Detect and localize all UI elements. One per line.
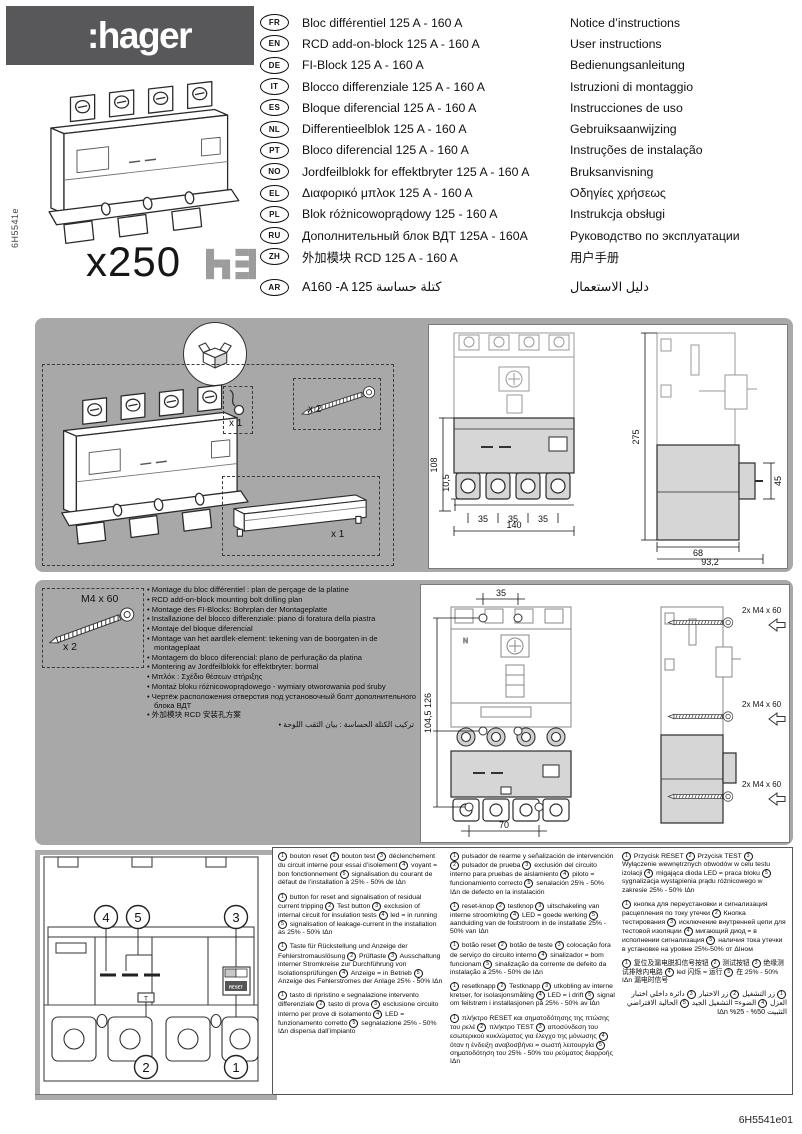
language-badge: EN	[260, 35, 289, 52]
legend-nl: 1 reset-knop 2 testknop 3 uitschakeling …	[450, 902, 615, 937]
drilling-drawing: N	[421, 585, 787, 840]
manual-title: Руководство по эксплуатации	[570, 229, 797, 243]
language-badge: EL	[260, 185, 289, 202]
hager-logo-text: :hager	[69, 15, 191, 57]
legend-number: 1	[777, 990, 786, 999]
dim-top-pitch: 35	[496, 588, 506, 598]
note-item: تركيب الكتلة الحساسة : بيان الثقب اللوحة	[147, 721, 414, 730]
manual-title: Bedienungsanleitung	[570, 58, 797, 72]
legend-number: 2	[477, 1023, 486, 1032]
reset-unit: RESET	[223, 967, 250, 995]
arrow-left-icon	[769, 713, 785, 725]
language-row-no: NOJordfeilblokk for effektbryter 125 A -…	[260, 161, 797, 182]
seal-icon	[224, 387, 249, 417]
legend-number: 1	[278, 991, 287, 1000]
legend-number: 2	[316, 1000, 325, 1009]
cover-kit-box: x 1	[222, 476, 380, 556]
dim-hole-spacing: 104,5 126	[423, 693, 433, 733]
section-divider	[35, 1094, 273, 1095]
language-badge: ZH	[260, 248, 289, 265]
legend-number: 5	[483, 960, 492, 969]
legend-number: 3	[372, 902, 381, 911]
bolt-kit-box: M4 x 60 x 2	[42, 588, 144, 668]
dim-width: 140	[506, 520, 521, 530]
dimension-panel: 108 10,5 35 35 35 140	[428, 324, 788, 569]
instruction-leaflet: :hager 6H5541e x250 FRBloc différentiel …	[0, 0, 802, 1134]
manual-title: Gebruiksaanwijzing	[570, 122, 797, 136]
cover-qty: x 1	[331, 529, 344, 540]
product-title: Bloc différentiel 125 A - 160 A	[302, 16, 570, 30]
manual-title: Οδηγίες χρήσεως	[570, 186, 797, 200]
product-title: Bloque diferencial 125 A - 160 A	[302, 101, 570, 115]
language-row-en: ENRCD add-on-block 125 A - 160 AUser ins…	[260, 33, 797, 54]
legend-number: 5	[278, 920, 287, 929]
language-row-pt: PTBloco diferencial 125 A - 160 AInstruç…	[260, 140, 797, 161]
legend-number: 4	[644, 869, 653, 878]
legend-es: 1 pulsador de rearme y señalización de i…	[450, 852, 615, 897]
legend-number: 4	[538, 951, 547, 960]
screw-note-1: 2x M4 x 60	[742, 606, 782, 615]
dim-bottom-pitch: 70	[499, 820, 509, 830]
language-row-fr: FRBloc différentiel 125 A - 160 ANotice …	[260, 12, 797, 33]
legend-number: 2	[330, 852, 339, 861]
callout-3: 3	[232, 910, 239, 925]
language-badge: IT	[260, 78, 289, 95]
legend-number: 2	[325, 902, 334, 911]
legend-number: 5	[585, 991, 594, 1000]
note-item: Montaż bloku różnicowoprądowego - wymiar…	[154, 683, 421, 692]
legend-zh: 1 复位及漏电脱扣信号按钮 2 测试按钮 3 绝缘测试排除内电路 4 led 闪…	[622, 959, 787, 985]
note-item: Montage van het aardlek-element: tekenin…	[154, 635, 421, 653]
manual-title: دليل الاستعمال	[570, 279, 797, 295]
legend-number: 1	[622, 959, 631, 968]
legend-number: 4	[510, 911, 519, 920]
reset-button-label: RESET	[229, 985, 243, 990]
product-title: Blok różnicowoprądowy 125 - 160 A	[302, 207, 570, 221]
product-title: Дополнительный блок ВДТ 125А - 160А	[302, 229, 570, 243]
seal-kit-box: x 1	[223, 386, 253, 434]
language-row-zh: ZH外加模块 RCD 125 A - 160 A用户手册	[260, 246, 797, 267]
note-item: 外加模块 RCD 安装孔方案	[154, 711, 421, 720]
note-item: Montagem do bloco diferencial: plano de …	[154, 654, 421, 663]
legend-number: 4	[665, 968, 674, 977]
h3-range-logo	[206, 247, 256, 281]
legend-ar: 1 زر التشغيل 2 زر الاختبار 3 دائرة داخلي…	[622, 990, 787, 1017]
legend-number: 4	[536, 991, 545, 1000]
legend-number: 4	[684, 927, 693, 936]
legend-number: 4	[399, 861, 408, 870]
language-row-nl: NLDifferentieelblok 125 A - 160 AGebruik…	[260, 118, 797, 139]
legend-number: 3	[542, 982, 551, 991]
legend-number: 3	[687, 990, 696, 999]
product-isometric-drawing	[30, 76, 256, 248]
legend-column: 1 pulsador de rearme y señalización de i…	[450, 852, 615, 1090]
language-list: FRBloc différentiel 125 A - 160 ANotice …	[260, 12, 797, 298]
legend-number: 2	[686, 852, 695, 861]
product-title: 外加模块 RCD 125 A - 160 A	[302, 248, 570, 266]
legend-de: 1 Taste für Rückstellung und Anzeige der…	[278, 942, 443, 986]
section-drilling-plan: M4 x 60 x 2 Montage du bloc différentiel…	[35, 580, 793, 845]
terminal-cover-icon	[227, 485, 373, 541]
note-item: Montage du bloc différentiel : plan de p…	[154, 586, 421, 595]
legend-number: 1	[278, 942, 287, 951]
legend-number: 2	[450, 861, 459, 870]
seal-qty: x 1	[229, 418, 242, 429]
callout-5: 5	[134, 910, 141, 925]
note-item: Чертёж расположения отверстия под устано…	[154, 693, 421, 711]
note-item: RCD add-on-block mounting bolt drilling …	[154, 596, 421, 605]
product-title: Differentieelblok 125 A - 160 A	[302, 122, 570, 136]
legend-number: 2	[497, 982, 506, 991]
dim-foot-offset: 10,5	[441, 474, 451, 492]
note-item: Montering av Jordfeilblokk for effektbry…	[154, 663, 421, 672]
legend-number: 3	[388, 952, 397, 961]
note-item: Μπλόκ : Σχέδιο θέσεων στήριξης	[154, 673, 421, 682]
document-ref-vertical: 6H5541e	[10, 168, 20, 248]
legend-pt: 1 botão reset 2 botão de teste 3 colocaç…	[450, 941, 615, 977]
product-title: RCD add-on-block 125 A - 160 A	[302, 37, 570, 51]
product-title: A160 -A 125 كتلة حساسة	[302, 279, 570, 295]
dim-knob-height: 45	[773, 476, 783, 486]
test-button-label: T	[144, 996, 148, 1003]
language-badge: NO	[260, 163, 289, 180]
legend-number: 3	[744, 852, 753, 861]
legend-number: 5	[680, 999, 689, 1008]
legend-it: 1 tasto di ripristino e segnalazione int…	[278, 991, 443, 1036]
language-badge: RU	[260, 227, 289, 244]
legend-number: 2	[711, 959, 720, 968]
legend-el: 1 πλήκτρο RESET και σηματοδότησης της πτ…	[450, 1014, 615, 1067]
legend-number: 3	[377, 852, 386, 861]
legend-number: 5	[724, 968, 733, 977]
dim-pitch-3: 35	[538, 514, 548, 524]
note-item: Montaje del bloque diferencial	[154, 625, 421, 634]
legend-number: 1	[450, 941, 459, 950]
language-badge: DE	[260, 57, 289, 74]
manual-title: User instructions	[570, 37, 797, 51]
legend-number: 3	[752, 959, 761, 968]
drilling-panel: N	[420, 584, 790, 843]
legend-number: 5	[414, 969, 423, 978]
screw-note-3: 2x M4 x 60	[742, 780, 782, 789]
language-badge: AR	[260, 279, 289, 296]
manual-title: Instrucciones de uso	[570, 101, 797, 115]
legend-column: 1 Przycisk RESET 2 Przycisk TEST 3 Wyłąc…	[622, 852, 787, 1090]
legend-number: 2	[712, 909, 721, 918]
callout-4: 4	[102, 910, 109, 925]
legend-number: 5	[589, 911, 598, 920]
language-row-ar: ARA160 -A 125 كتلة حساسةدليل الاستعمال	[260, 277, 797, 298]
bolt-icon	[43, 595, 141, 659]
screws-kit-box: x 2	[293, 378, 381, 430]
legend-number: 2	[730, 990, 739, 999]
legend-number: 3	[371, 1000, 380, 1009]
legend-number: 4	[373, 1010, 382, 1019]
legend-number: 1	[278, 852, 287, 861]
note-item: Montage des FI-Blocks: Bohrplan der Mont…	[154, 606, 421, 615]
legend-number: 1	[450, 902, 459, 911]
legend-fr: 1 bouton reset 2 bouton test 3 déclenche…	[278, 852, 443, 888]
callout-2: 2	[142, 1060, 149, 1075]
language-row-es: ESBloque diferencial 125 A - 160 AInstru…	[260, 97, 797, 118]
dim-front-height: 108	[429, 457, 439, 472]
manual-title: Bruksanvisning	[570, 165, 797, 179]
legend-column: 1 bouton reset 2 bouton test 3 déclenche…	[278, 852, 443, 1090]
dim-pitch-1: 35	[478, 514, 488, 524]
manual-title: 用户手册	[570, 248, 797, 266]
language-row-el: ELΔιαφορικό μπλοκ 125 A - 160 AΟδηγίες χ…	[260, 182, 797, 203]
document-ref-footer: 6H5541e01	[560, 1114, 793, 1126]
bolt-qty: x 2	[63, 641, 77, 653]
language-badge: FR	[260, 14, 289, 31]
legend-number: 5	[340, 870, 349, 879]
product-title: Blocco differenziale 125 A - 160 A	[302, 80, 570, 94]
legend-number: 1	[622, 852, 631, 861]
legend-number: 2	[498, 941, 507, 950]
screws-qty: x 2	[308, 404, 321, 415]
legend-pl: 1 Przycisk RESET 2 Przycisk TEST 3 Wyłąc…	[622, 852, 787, 895]
arrow-left-icon	[769, 619, 785, 631]
language-row-pl: PLBlok różnicowoprądowy 125 - 160 AInstr…	[260, 204, 797, 225]
product-title: Bloco diferencial 125 A - 160 A	[302, 143, 570, 157]
language-badge: NL	[260, 121, 289, 138]
manual-title: Instruções de instalação	[570, 143, 797, 157]
legend-number: 1	[622, 900, 631, 909]
dimension-drawing: 108 10,5 35 35 35 140	[429, 325, 785, 566]
legend-number: 3	[536, 1023, 545, 1032]
language-badge: ES	[260, 99, 289, 116]
legend-number: 3	[535, 902, 544, 911]
legend-number: 5	[596, 1041, 605, 1050]
language-badge: PT	[260, 142, 289, 159]
dim-total-height: 275	[631, 429, 641, 444]
language-row-it: ITBlocco differenziale 125 A - 160 AIstr…	[260, 76, 797, 97]
hager-logo: :hager	[6, 6, 254, 65]
language-badge: PL	[260, 206, 289, 223]
product-title: Διαφορικό μπλοκ 125 A - 160 A	[302, 186, 570, 200]
legend-number: 3	[667, 918, 676, 927]
legend-number: 2	[347, 952, 356, 961]
legend-number: 5	[706, 936, 715, 945]
legend-number: 2	[496, 902, 505, 911]
note-item: Installazione del blocco differenziale: …	[154, 615, 421, 624]
language-row-de: DEFI-Block 125 A - 160 ABedienungsanleit…	[260, 55, 797, 76]
product-code: x250	[86, 238, 181, 286]
legend-number: 5	[762, 869, 771, 878]
screw-note-2: 2x M4 x 60	[742, 700, 782, 709]
screw-icon	[296, 375, 380, 429]
legend-number: 4	[339, 969, 348, 978]
legend-number: 4	[379, 911, 388, 920]
legend-number: 1	[450, 1014, 459, 1023]
legend-number: 1	[450, 852, 459, 861]
legend-en: 1 button for reset and signalisation of …	[278, 893, 443, 938]
legend-number: 1	[450, 982, 459, 991]
legend-number: 4	[758, 999, 767, 1008]
mounting-notes: Montage du bloc différentiel : plan de p…	[147, 586, 421, 731]
legend-ru: 1 кнопка для переустановки и сигнализаци…	[622, 900, 787, 954]
legend-number: 4	[599, 1032, 608, 1041]
dim-total-depth: 93,2	[701, 557, 719, 566]
callout-1: 1	[232, 1060, 239, 1075]
svg-text:N: N	[463, 638, 468, 645]
arrow-left-icon	[769, 793, 785, 805]
legend-number: 5	[349, 1019, 358, 1028]
legend-box: 1 bouton reset 2 bouton test 3 déclenche…	[272, 847, 793, 1095]
front-panel-drawing: T RESET 4 5 3	[35, 850, 277, 1100]
section-package-contents: x 1 x 2 x 1	[35, 318, 793, 572]
legend-number: 3	[522, 861, 531, 870]
product-title: FI-Block 125 A - 160 A	[302, 58, 570, 72]
manual-title: Notice d’instructions	[570, 16, 797, 30]
manual-title: Instrukcja obsługi	[570, 207, 797, 221]
legend-number: 3	[555, 941, 564, 950]
legend-number: 1	[278, 893, 287, 902]
legend-number: 4	[560, 870, 569, 879]
legend-number: 5	[524, 879, 533, 888]
legend-no: 1 resetknapp 2 Testknapp 3 utkobling av …	[450, 982, 615, 1008]
product-title: Jordfeilblokk for effektbryter 125 A - 1…	[302, 165, 570, 179]
manual-title: Istruzioni di montaggio	[570, 80, 797, 94]
language-row-ru: RUДополнительный блок ВДТ 125А - 160АРук…	[260, 225, 797, 246]
